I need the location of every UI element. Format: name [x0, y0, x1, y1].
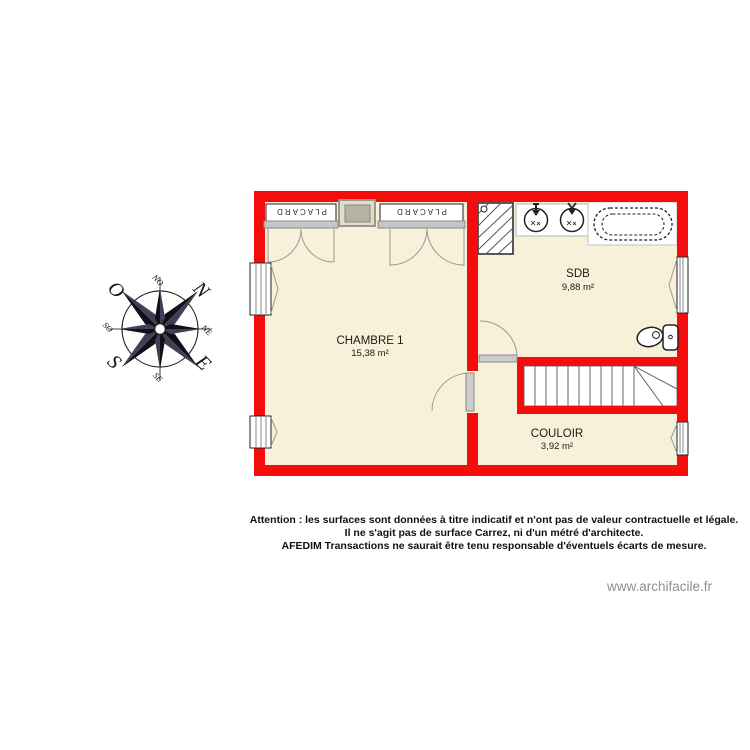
room-label-sdb: SDB — [566, 268, 590, 280]
compass-northwest-label: NO — [150, 272, 166, 288]
floor-plan-drawing: PLACARD PLACARD CHAMBRE 1 15,38 m² SDB — [0, 0, 750, 750]
wall-stairs-top — [517, 357, 677, 366]
shower-drain-icon — [481, 206, 487, 212]
compass-south-label: S — [103, 351, 126, 374]
wall-interior-vertical — [467, 413, 478, 465]
compass-southwest-label: SO — [101, 320, 115, 334]
watermark-url: www.archifacile.fr — [520, 579, 712, 594]
compass-northeast-label: NE — [199, 322, 215, 338]
staircase — [524, 366, 677, 406]
wall-stairs-left — [517, 357, 524, 414]
bathtub — [588, 202, 677, 245]
compass-west-label: O — [103, 277, 129, 303]
room-area-sdb: 9,88 m² — [562, 282, 594, 293]
shower — [478, 203, 513, 254]
compass-southeast-label: SE — [151, 370, 165, 384]
wall-interior-vertical — [467, 202, 478, 371]
wall-bottom — [254, 465, 688, 476]
wall-stairs-bottom — [517, 406, 677, 414]
wall-top — [254, 191, 688, 202]
room-label-chambre1: CHAMBRE 1 — [336, 335, 403, 347]
room-area-chambre1: 15,38 m² — [351, 348, 389, 359]
compass-rose: N O S E NO NE SE SO — [101, 272, 215, 385]
chimney-duct — [339, 200, 375, 226]
disclaimer-line: AFEDIM Transactions ne saurait être tenu… — [244, 540, 744, 553]
placard-label: PLACARD — [275, 207, 327, 216]
disclaimer-line: Il ne s'agit pas de surface Carrez, ni d… — [244, 527, 744, 540]
floor-plan-page: PLACARD PLACARD CHAMBRE 1 15,38 m² SDB — [0, 0, 750, 750]
vanity-counter — [516, 203, 590, 236]
compass-east-label: E — [190, 350, 215, 375]
disclaimer-line: Attention : les surfaces sont données à … — [244, 514, 744, 527]
placard-label: PLACARD — [395, 207, 447, 216]
room-area-couloir: 3,92 m² — [541, 441, 573, 452]
disclaimer-text: Attention : les surfaces sont données à … — [244, 514, 744, 553]
room-label-couloir: COULOIR — [531, 428, 583, 440]
